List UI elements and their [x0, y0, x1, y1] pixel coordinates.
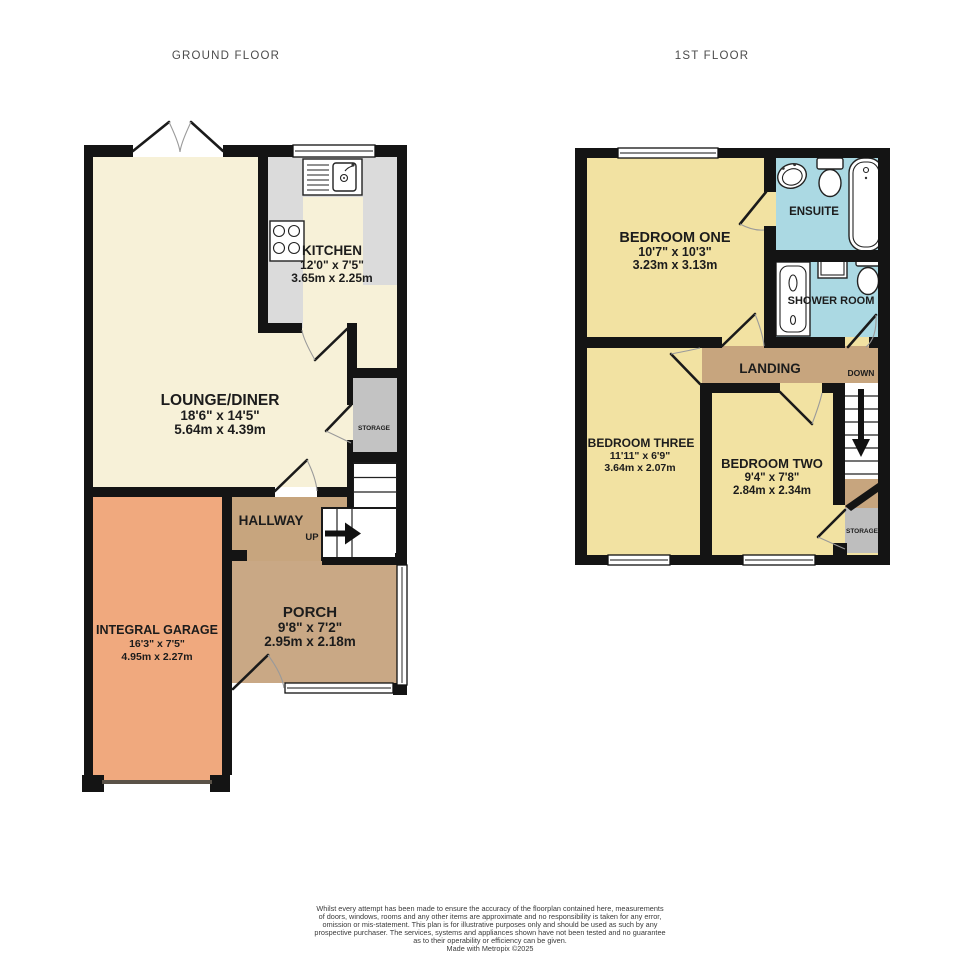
kitchen-label: KITCHEN: [302, 243, 362, 258]
kitchen-imperial: 12'0" x 7'5": [300, 258, 364, 272]
lounge-label: LOUNGE/DINER: [161, 392, 280, 409]
floorplan-canvas: GROUND FLOOR 1ST FLOOR: [0, 0, 980, 980]
up-label: UP: [305, 532, 319, 543]
storage-label-first: STORAGE: [846, 528, 879, 535]
hallway-label: HALLWAY: [239, 513, 304, 528]
floorplan-page: GROUND FLOOR 1ST FLOOR: [0, 0, 980, 980]
kitchen-sink: [303, 159, 362, 195]
ensuite-label: ENSUITE: [789, 206, 839, 218]
kitchen-window: [293, 145, 375, 157]
disclaimer: Whilst every attempt has been made to en…: [314, 904, 665, 953]
bedroom-three-window: [608, 555, 670, 565]
storage-label-ground: STORAGE: [358, 425, 391, 432]
bedroom-two-window: [743, 555, 815, 565]
made-with-metropix: Made with Metropix ©2025: [447, 944, 534, 953]
bedroom-one-window: [618, 148, 718, 158]
ground-floor-plan: LOUNGE/DINER 18'6" x 14'5" 5.64m x 4.39m…: [82, 122, 407, 792]
landing-label: LANDING: [739, 361, 801, 376]
porch-metric: 2.95m x 2.18m: [264, 634, 356, 649]
bedroom-three-metric: 3.64m x 2.07m: [604, 462, 675, 474]
shower-room-label: SHOWER ROOM: [788, 295, 875, 307]
porch-side-window: [397, 565, 407, 685]
lounge-metric: 5.64m x 4.39m: [174, 422, 266, 437]
lounge-diner-area: [93, 157, 397, 487]
ensuite-toilet: [817, 158, 843, 197]
garage-imperial: 16'3" x 7'5": [129, 638, 185, 650]
lounge-imperial: 18'6" x 14'5": [180, 408, 259, 423]
porch-imperial: 9'8" x 7'2": [278, 620, 342, 635]
storage-area-ground: [353, 378, 397, 452]
bedroom-three-imperial: 11'11" x 6'9": [610, 450, 671, 462]
garage-label: INTEGRAL GARAGE: [96, 623, 218, 637]
french-doors: [133, 122, 223, 152]
porch-label: PORCH: [283, 604, 337, 621]
kitchen-metric: 3.65m x 2.25m: [291, 271, 372, 285]
first-floor-plan: BEDROOM ONE 10'7" x 10'3" 3.23m x 3.13m …: [575, 148, 890, 565]
ground-floor-title: GROUND FLOOR: [172, 50, 280, 62]
bedroom-two-label: BEDROOM TWO: [721, 456, 823, 471]
hob: [270, 221, 304, 261]
bedroom-two-imperial: 9'4" x 7'8": [745, 472, 800, 484]
bedroom-three-label: BEDROOM THREE: [588, 436, 695, 450]
bedroom-one-label: BEDROOM ONE: [619, 230, 731, 246]
bedroom-one-imperial: 10'7" x 10'3": [638, 245, 711, 259]
bath: [849, 158, 883, 251]
porch-front-window: [285, 683, 393, 693]
bedroom-one-metric: 3.23m x 3.13m: [633, 258, 718, 272]
down-label: DOWN: [848, 368, 875, 378]
bedroom-two-metric: 2.84m x 2.34m: [733, 485, 811, 497]
garage-metric: 4.95m x 2.27m: [121, 651, 192, 663]
first-floor-title: 1ST FLOOR: [675, 50, 750, 62]
